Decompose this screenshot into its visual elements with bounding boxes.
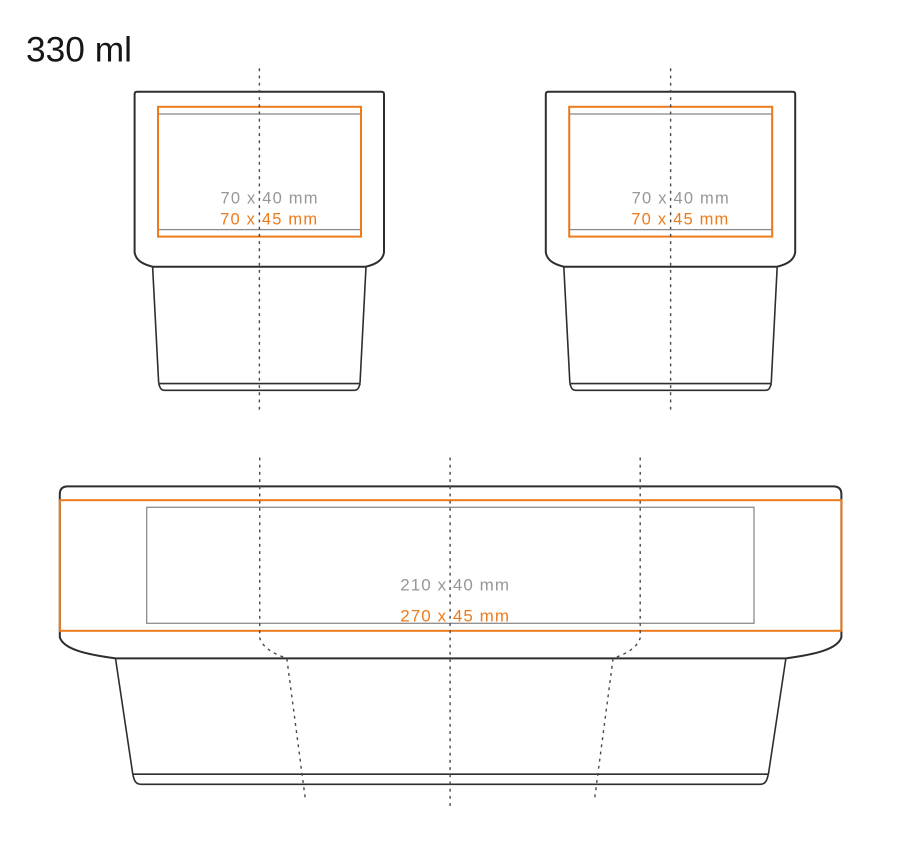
svg-text:270 x 45 mm: 270 x 45 mm [400, 606, 510, 625]
svg-text:210 x 40 mm: 210 x 40 mm [400, 575, 510, 594]
svg-text:330 ml: 330 ml [26, 31, 132, 70]
